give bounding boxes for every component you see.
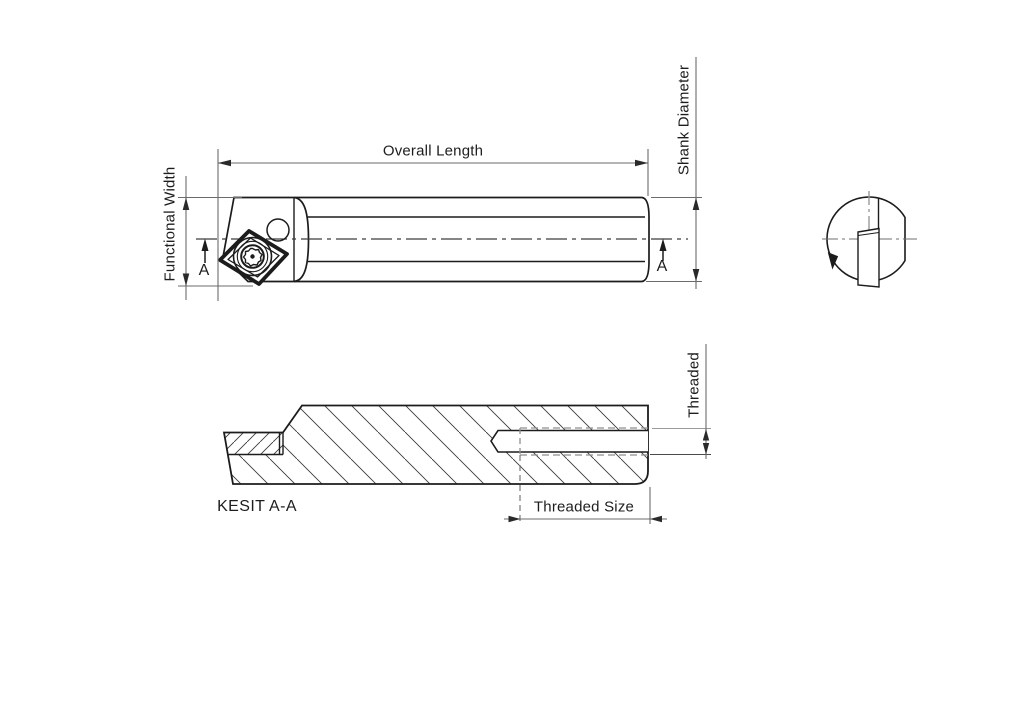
section-marker-a-right: A: [657, 258, 668, 276]
threaded-size-label: Threaded Size: [534, 499, 634, 516]
dim-shank-diameter: [646, 57, 702, 289]
top-view-tool: [196, 198, 688, 285]
threaded-label: Threaded: [686, 352, 703, 418]
functional-width-label: Functional Width: [162, 167, 179, 282]
overall-length-label: Overall Length: [383, 143, 483, 160]
technical-drawing-svg: [0, 0, 1024, 724]
shank-diameter-label: Shank Diameter: [676, 65, 693, 175]
drawing-canvas: Overall Length Shank Diameter Functional…: [0, 0, 1024, 724]
section-title-label: KESIT A-A: [217, 498, 297, 516]
section-marker-a-left: A: [199, 262, 210, 280]
end-view: [822, 191, 917, 291]
section-insert-hatch: [224, 433, 283, 455]
section-view: [224, 406, 648, 485]
